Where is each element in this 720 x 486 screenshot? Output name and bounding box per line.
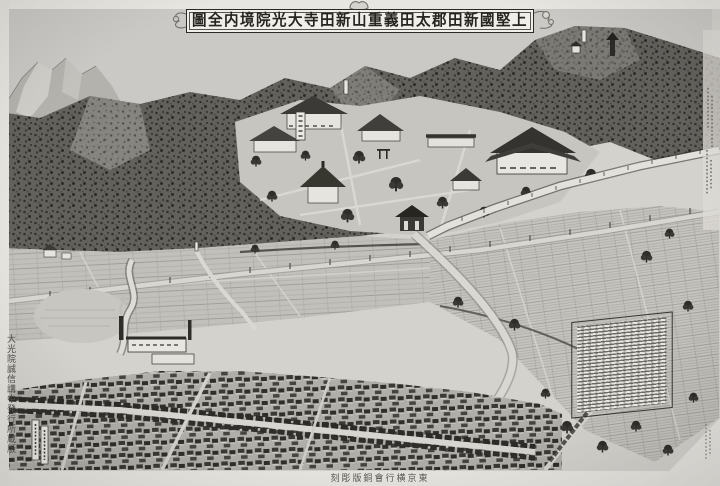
left-margin-note: 大光院誠信講中発行所蔵版 <box>3 334 18 462</box>
engraver-imprint: 刻彫版銅會行横京東 <box>296 472 464 485</box>
map-title: 圖全内境院光大寺田新山重義田太郡田新國堅上 <box>192 13 528 28</box>
scanned-map-photo: 圖全内境院光大寺田新山重義田太郡田新國堅上 大光院誠信講中発行所蔵版 刻彫版銅會… <box>0 0 720 486</box>
inscription-panel <box>571 311 672 418</box>
title-banner: 圖全内境院光大寺田新山重義田太郡田新國堅上 <box>186 9 534 33</box>
